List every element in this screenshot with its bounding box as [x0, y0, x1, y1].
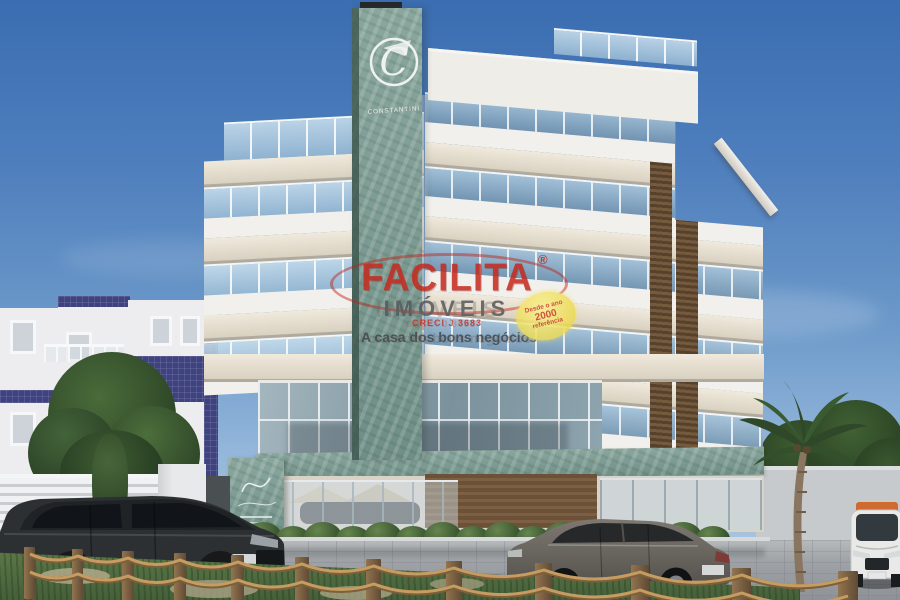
watermark-brand: FACILITA — [330, 256, 564, 300]
watermark-creci-number: CRECI J 3683 — [358, 318, 536, 328]
fence-ropes — [30, 554, 848, 600]
architectural-render-scene: C CONSTANTINI — [0, 0, 900, 600]
realty-watermark: FACILITA ® IMÓVEIS CRECI J 3683 A casa d… — [330, 250, 576, 352]
registered-trademark-symbol: ® — [538, 252, 548, 267]
